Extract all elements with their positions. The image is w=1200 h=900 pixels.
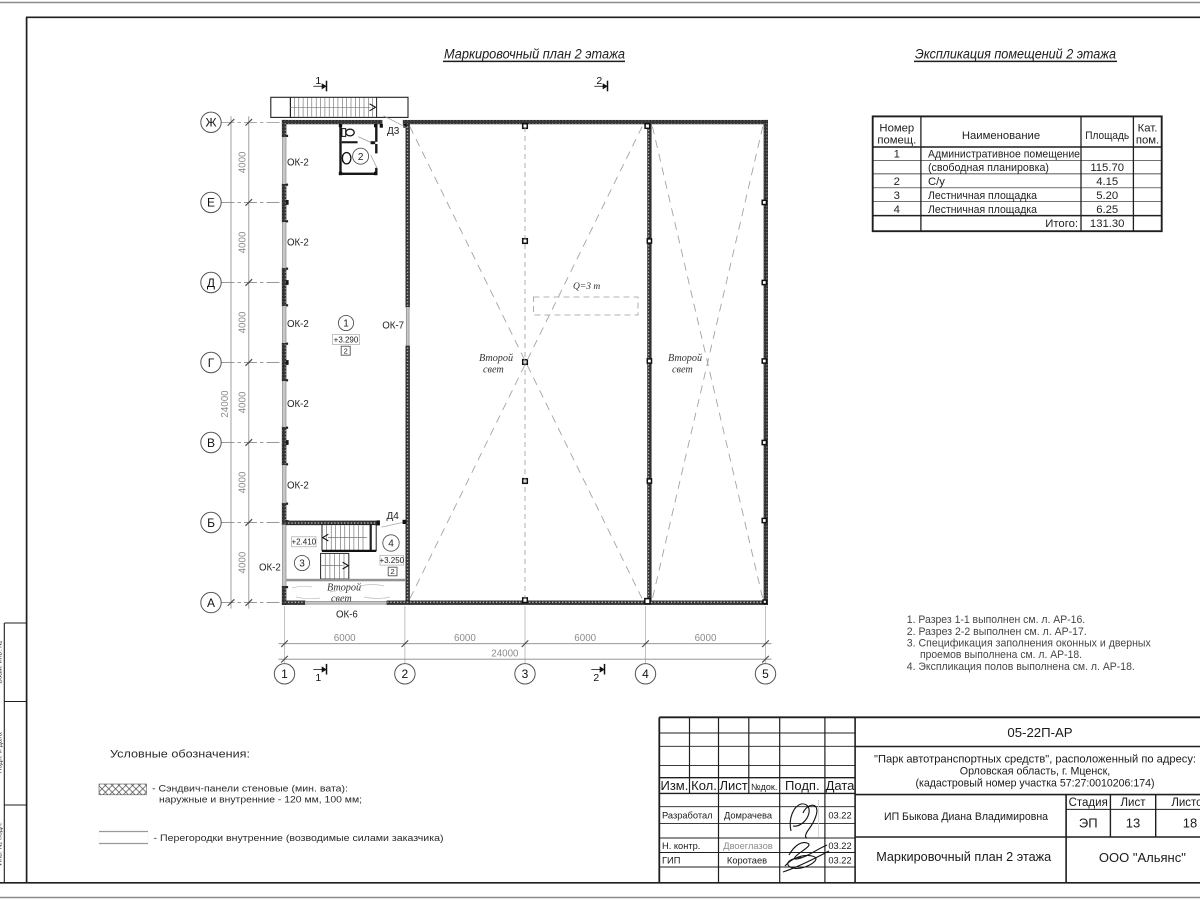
svg-text:6000: 6000 [695,633,717,644]
svg-text:6000: 6000 [574,633,596,644]
svg-text:1: 1 [281,667,288,681]
svg-text:В: В [207,436,215,450]
svg-text:Н. контр.: Н. контр. [662,841,700,851]
svg-text:- Сэндвич-панели стеновые (мин: - Сэндвич-панели стеновые (мин. вата): [152,783,348,794]
svg-text:4000: 4000 [238,551,249,573]
svg-text:Кол.: Кол. [691,778,717,793]
svg-text:3: 3 [522,667,529,681]
svg-text:Дата: Дата [826,778,856,793]
svg-text:03.22: 03.22 [828,841,851,851]
svg-text:ООО "Альянс": ООО "Альянс" [1099,850,1186,865]
svg-text:Маркировочный план 2 этажа: Маркировочный план 2 этажа [876,849,1052,864]
svg-text:наружные и внутренние - 120 мм: наружные и внутренние - 120 мм, 100 мм; [159,794,362,805]
svg-text:Инв. № подл.: Инв. № подл. [0,822,3,866]
svg-text:пом.: пом. [1136,135,1159,147]
svg-text:2: 2 [596,75,602,87]
svg-text:2: 2 [402,667,409,681]
svg-text:(кадастровый номер участка 57:: (кадастровый номер участка 57:27:0010206… [916,777,1155,789]
svg-text:4000: 4000 [238,391,249,413]
svg-text:ОК-6: ОК-6 [336,610,358,621]
svg-text:115.70: 115.70 [1090,162,1124,174]
svg-text:Е: Е [207,196,215,210]
svg-text:Лестничная площадка: Лестничная площадка [928,190,1038,202]
svg-text:ЭП: ЭП [1079,816,1098,831]
svg-text:Ж: Ж [205,116,216,130]
svg-text:6000: 6000 [454,633,476,644]
svg-text:Итого:: Итого: [1045,218,1078,230]
svg-text:+2.410: +2.410 [291,538,316,547]
svg-text:Площадь: Площадь [1085,130,1129,142]
svg-text:+3.250: +3.250 [379,556,404,565]
svg-text:Второй: Второй [327,583,361,594]
svg-text:2: 2 [344,346,348,355]
svg-text:18: 18 [1183,816,1197,831]
svg-text:Листов: Листов [1171,797,1200,809]
svg-text:6000: 6000 [334,633,356,644]
svg-text:13: 13 [1126,816,1140,831]
svg-text:свет: свет [331,594,352,605]
svg-text:24000: 24000 [220,390,231,418]
svg-text:5: 5 [762,667,769,681]
svg-text:4000: 4000 [238,231,249,253]
svg-text:Взам. инв. №: Взам. инв. № [0,640,3,683]
svg-text:24000: 24000 [491,648,519,659]
svg-text:4: 4 [642,667,649,681]
svg-text:Условные обозначения:: Условные обозначения: [110,749,250,761]
svg-text:3: 3 [894,190,900,202]
svg-text:- Перегородки внутренние (возв: - Перегородки внутренние (возводимые сил… [154,833,444,844]
svg-text:1: 1 [343,319,349,330]
svg-text:Двоеглазов: Двоеглазов [723,841,772,851]
svg-text:свет: свет [672,365,693,376]
svg-text:Д3: Д3 [387,126,400,137]
svg-text:Изм.: Изм. [660,778,688,793]
svg-text:ОК-2: ОК-2 [287,319,309,330]
svg-text:проемов выполнена см. л. АР-18: проемов выполнена см. л. АР-18. [920,649,1082,661]
svg-text:03.22: 03.22 [828,855,851,865]
svg-text:3: 3 [299,559,305,570]
svg-text:+3.290: +3.290 [334,335,359,344]
svg-text:А: А [207,596,215,610]
svg-text:1. Разрез 1-1 выполнен см. л.: 1. Разрез 1-1 выполнен см. л. АР-16. [907,614,1085,626]
svg-text:131.30: 131.30 [1090,218,1125,230]
svg-text:1: 1 [894,149,900,161]
svg-text:Стадия: Стадия [1069,797,1108,809]
svg-text:2: 2 [894,176,900,188]
svg-text:Номер: Номер [879,123,914,135]
svg-text:Q=3 т: Q=3 т [573,282,600,292]
svg-text:С/у: С/у [928,176,945,188]
svg-text:4. Экспликация полов выполнена: 4. Экспликация полов выполнена см. л. АР… [907,661,1135,673]
svg-text:Г: Г [208,356,215,370]
svg-text:ОК-2: ОК-2 [287,399,309,410]
svg-text:Орловская область, г. Мценск,: Орловская область, г. Мценск, [960,766,1111,778]
svg-text:1: 1 [315,75,321,87]
svg-text:4.15: 4.15 [1096,176,1118,188]
svg-text:Кат.: Кат. [1138,123,1158,135]
svg-text:ИП Быкова Диана Владимировна: ИП Быкова Диана Владимировна [884,811,1049,823]
svg-text:Домрачева: Домрачева [724,810,773,820]
svg-text:2: 2 [358,152,364,163]
svg-text:Подп. и дата: Подп. и дата [0,732,3,773]
svg-text:ОК-2: ОК-2 [287,481,309,492]
svg-text:Второй: Второй [668,353,702,364]
svg-text:Разработал: Разработал [662,810,713,820]
svg-text:Наименование: Наименование [962,130,1040,142]
svg-text:Экспликация помещений 2 этажа: Экспликация помещений 2 этажа [915,47,1116,62]
svg-text:4000: 4000 [238,151,249,173]
svg-text:4000: 4000 [238,311,249,333]
svg-text:03.22: 03.22 [828,810,851,820]
svg-text:ОК-2: ОК-2 [287,238,309,249]
svg-text:ГИП: ГИП [662,855,680,865]
svg-text:05-22П-АР: 05-22П-АР [1007,725,1072,740]
svg-text:5.20: 5.20 [1096,190,1118,202]
svg-text:4: 4 [894,204,900,216]
svg-text:Маркировочный план 2 этажа: Маркировочный план 2 этажа [444,47,625,62]
svg-text:3. Спецификация заполнения око: 3. Спецификация заполнения оконных и две… [907,638,1152,650]
svg-text:Коротаев: Коротаев [727,855,767,865]
svg-text:ОК-2: ОК-2 [259,563,281,574]
svg-text:"Парк автотранспортных средств: "Парк автотранспортных средств", располо… [874,754,1196,766]
svg-text:1: 1 [315,672,321,684]
svg-text:Лист: Лист [1121,797,1147,809]
svg-text:Д4: Д4 [387,511,400,522]
svg-text:помещ.: помещ. [877,135,916,147]
svg-text:Второй: Второй [479,353,513,364]
svg-text:№док.: №док. [751,782,777,792]
svg-text:(свободная планировка): (свободная планировка) [928,162,1049,174]
svg-text:2: 2 [593,672,599,684]
svg-text:Подп.: Подп. [785,778,820,793]
svg-text:4000: 4000 [238,471,249,493]
svg-text:Лестничная площадка: Лестничная площадка [928,204,1038,216]
svg-text:Административное помещение: Административное помещение [928,149,1080,161]
svg-text:4: 4 [388,539,394,550]
svg-text:Б: Б [207,516,215,530]
svg-text:ОК-2: ОК-2 [287,158,309,169]
svg-text:Лист: Лист [719,778,747,793]
svg-text:6.25: 6.25 [1096,204,1118,216]
svg-text:свет: свет [483,365,504,376]
svg-text:2: 2 [391,567,395,576]
svg-text:Д: Д [207,276,215,290]
svg-text:ОК-7: ОК-7 [382,321,404,332]
svg-text:2. Разрез 2-2 выполнен см. л.: 2. Разрез 2-2 выполнен см. л. АР-17. [907,626,1087,638]
